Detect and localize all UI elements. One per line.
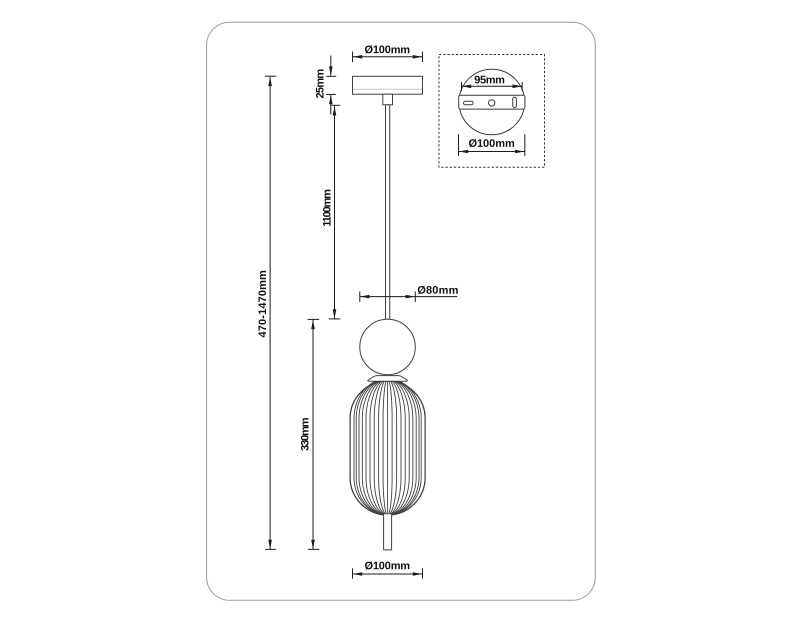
svg-text:330mm: 330mm bbox=[299, 417, 311, 451]
svg-text:1100mm: 1100mm bbox=[321, 189, 333, 227]
svg-text:25mm: 25mm bbox=[315, 69, 327, 99]
svg-text:Ø100mm: Ø100mm bbox=[364, 44, 410, 56]
svg-text:Ø80mm: Ø80mm bbox=[417, 285, 458, 297]
svg-text:95mm: 95mm bbox=[474, 74, 505, 86]
svg-text:470-1470mm: 470-1470mm bbox=[257, 270, 269, 338]
svg-text:Ø100mm: Ø100mm bbox=[364, 560, 410, 572]
svg-text:Ø100mm: Ø100mm bbox=[468, 138, 515, 150]
